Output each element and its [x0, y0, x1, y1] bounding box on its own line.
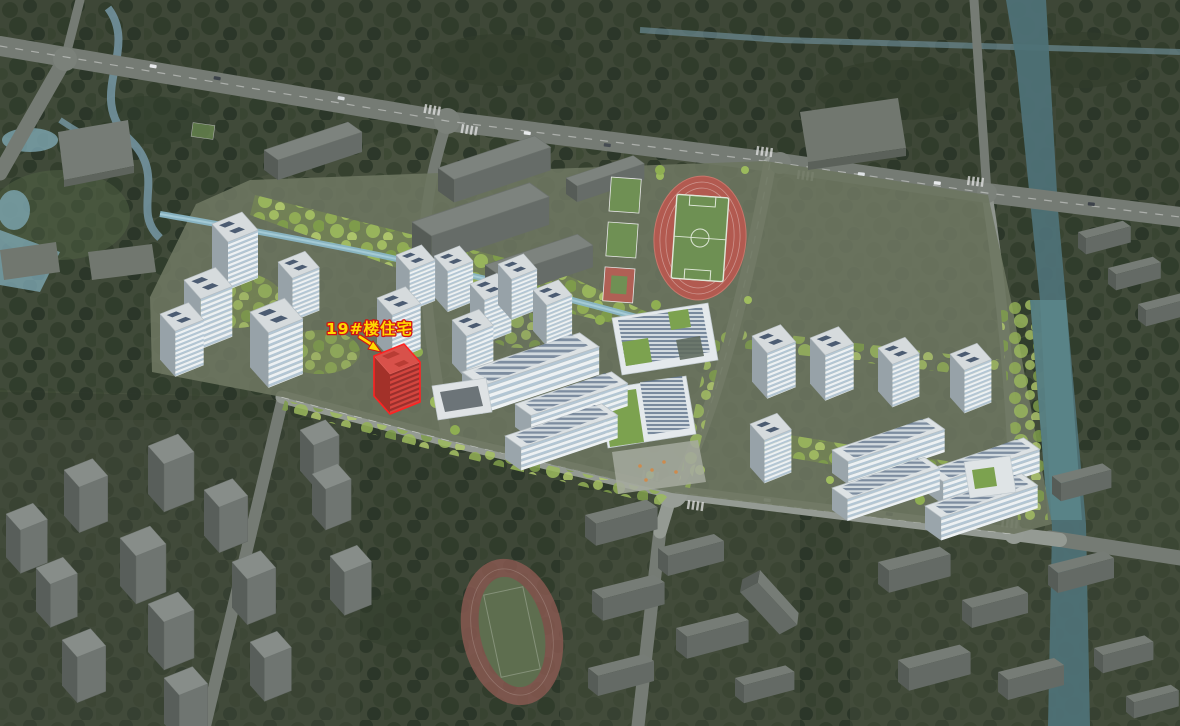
highlighted-building-19[interactable]	[374, 344, 420, 414]
residential-tower	[250, 298, 303, 388]
residential-tower	[160, 303, 204, 377]
residential-tower	[498, 254, 537, 320]
residential-tower	[752, 325, 796, 399]
building-19-label[interactable]: 19#楼住宅	[326, 319, 413, 338]
residential-tower	[878, 337, 919, 407]
site-aerial-rendering: 19#楼住宅	[0, 0, 1180, 726]
residential-tower	[810, 327, 854, 401]
residential-tower	[950, 343, 991, 413]
residential-tower	[750, 413, 791, 483]
residential-tower	[434, 246, 473, 312]
kindergarten	[964, 456, 1016, 498]
